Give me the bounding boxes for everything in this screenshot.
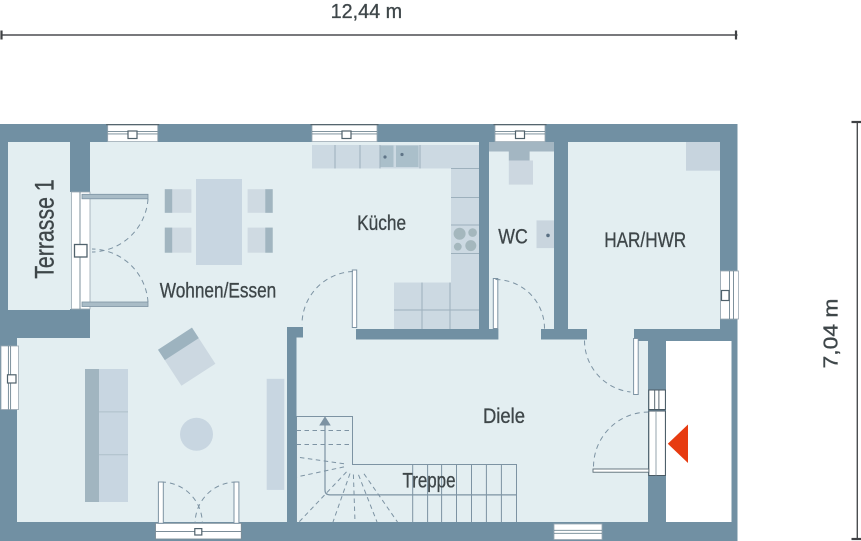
svg-text:Terrasse 1: Terrasse 1	[30, 179, 60, 279]
svg-text:HAR/HWR: HAR/HWR	[604, 228, 686, 252]
svg-text:WC: WC	[498, 225, 528, 249]
svg-text:Diele: Diele	[483, 404, 525, 428]
svg-text:7,04 m: 7,04 m	[819, 299, 842, 369]
svg-text:Wohnen/Essen: Wohnen/Essen	[160, 279, 277, 303]
svg-text:Küche: Küche	[357, 211, 406, 235]
svg-text:12,44 m: 12,44 m	[331, 0, 403, 23]
svg-text:Treppe: Treppe	[403, 468, 456, 492]
